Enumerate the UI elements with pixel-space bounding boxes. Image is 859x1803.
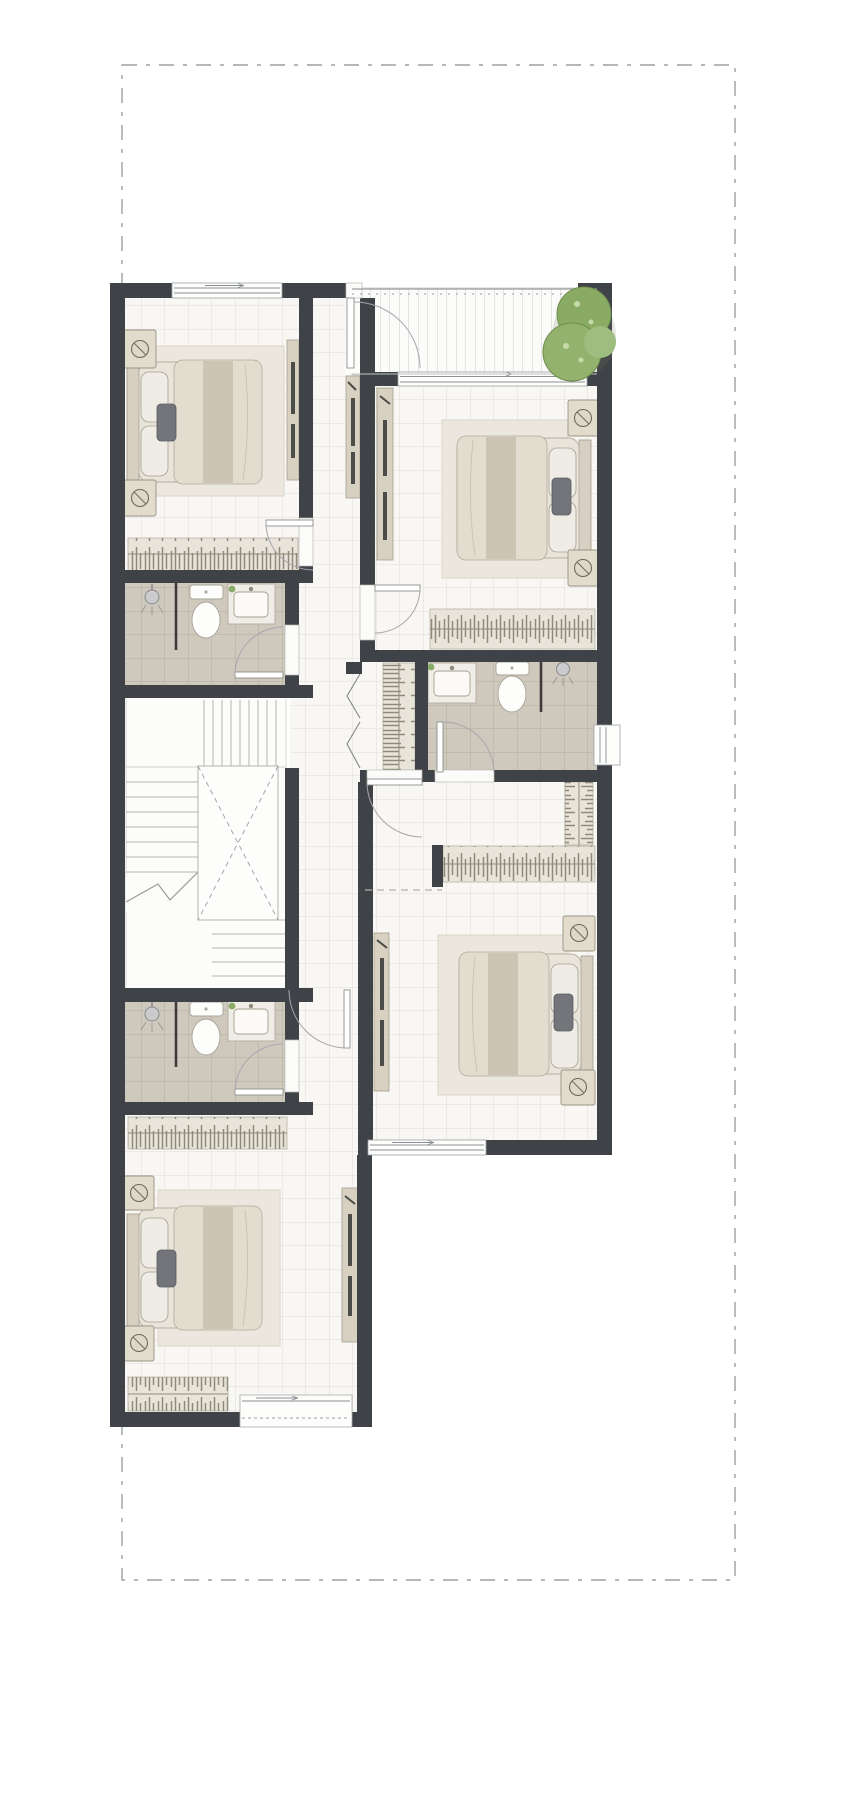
console-desk-bar xyxy=(380,958,384,1010)
bed-blanket xyxy=(488,953,518,1075)
wall xyxy=(360,650,597,662)
door-leaf xyxy=(235,1089,283,1095)
vanity-sink xyxy=(234,1009,268,1034)
console-desk-bar xyxy=(383,492,387,540)
floor-plan xyxy=(0,0,859,1803)
vanity-sink xyxy=(434,671,470,696)
faucet-icon xyxy=(249,587,253,591)
wall xyxy=(358,1140,368,1155)
console-desk-bar xyxy=(291,424,295,458)
console-desk-bar xyxy=(351,452,355,484)
floor-plan-page xyxy=(0,0,859,1803)
toilet-button xyxy=(510,666,513,669)
door-leaf xyxy=(375,585,420,591)
bed-blanket xyxy=(203,1207,233,1329)
bed-headboard xyxy=(127,1214,139,1326)
bed-headboard xyxy=(581,956,593,1072)
console-desk-bar xyxy=(351,398,355,446)
shower-head-icon xyxy=(145,1007,159,1021)
plant-highlight xyxy=(563,343,569,349)
bed-headboard xyxy=(127,368,139,480)
door-leaf xyxy=(266,520,313,526)
wall xyxy=(432,845,443,887)
door-threshold xyxy=(360,585,375,640)
soap-icon xyxy=(229,1003,236,1010)
door-threshold xyxy=(435,770,494,782)
door-leaf xyxy=(437,722,443,772)
wall xyxy=(110,1412,240,1427)
soap-icon xyxy=(229,586,236,593)
plant-foliage xyxy=(584,326,616,358)
door-threshold xyxy=(285,625,299,675)
console-desk-bar xyxy=(348,1276,352,1316)
toilet-bowl xyxy=(192,602,220,638)
bed-cushion xyxy=(554,994,573,1031)
bed-cushion xyxy=(157,404,176,441)
wall xyxy=(357,1155,372,1427)
bed-headboard xyxy=(579,440,591,556)
wall xyxy=(358,782,373,1140)
wall xyxy=(415,662,428,770)
wall xyxy=(486,1140,612,1155)
console-desk xyxy=(374,933,389,1091)
toilet-bowl xyxy=(192,1019,220,1055)
plant-highlight xyxy=(589,320,594,325)
faucet-icon xyxy=(249,1004,253,1008)
wall xyxy=(360,770,367,782)
wall xyxy=(285,583,299,625)
wall xyxy=(597,331,612,726)
window xyxy=(594,725,620,765)
toilet-bowl xyxy=(498,676,526,712)
bed-cushion xyxy=(157,1250,176,1287)
wall xyxy=(282,283,348,298)
console-desk-bar xyxy=(383,420,387,476)
bed-cushion xyxy=(552,478,571,515)
wall xyxy=(110,570,313,583)
door-threshold xyxy=(285,1040,299,1092)
console-desk-bar xyxy=(380,1020,384,1066)
plant-highlight xyxy=(574,301,580,307)
shower-head-icon xyxy=(145,590,159,604)
door-threshold xyxy=(346,283,362,298)
wall xyxy=(346,662,362,674)
wall xyxy=(360,298,375,585)
toilet-button xyxy=(204,1007,207,1010)
window-balconette xyxy=(240,1395,352,1427)
floor-plan-layers xyxy=(110,65,735,1580)
wall xyxy=(597,764,612,1155)
vanity-sink xyxy=(234,592,268,617)
toilet-button xyxy=(204,590,207,593)
wall xyxy=(110,685,313,698)
faucet-icon xyxy=(450,666,454,670)
door-leaf xyxy=(367,779,422,785)
wall xyxy=(110,283,172,298)
door-leaf xyxy=(347,298,354,368)
wall xyxy=(299,298,313,518)
bed-blanket xyxy=(486,437,516,559)
wall xyxy=(494,770,597,782)
console-desk-bar xyxy=(348,1214,352,1266)
stair-break-mask xyxy=(126,876,198,912)
wall xyxy=(352,1412,372,1427)
wall xyxy=(110,1102,313,1115)
wall xyxy=(422,770,435,782)
bed-blanket xyxy=(203,361,233,483)
soap-icon xyxy=(428,664,435,671)
plant-highlight xyxy=(579,358,584,363)
wall xyxy=(110,283,125,1427)
door-leaf xyxy=(344,990,350,1048)
wall xyxy=(110,988,313,1002)
door-leaf xyxy=(235,672,283,678)
console-desk-bar xyxy=(291,362,295,414)
shower-head-icon xyxy=(557,663,570,676)
